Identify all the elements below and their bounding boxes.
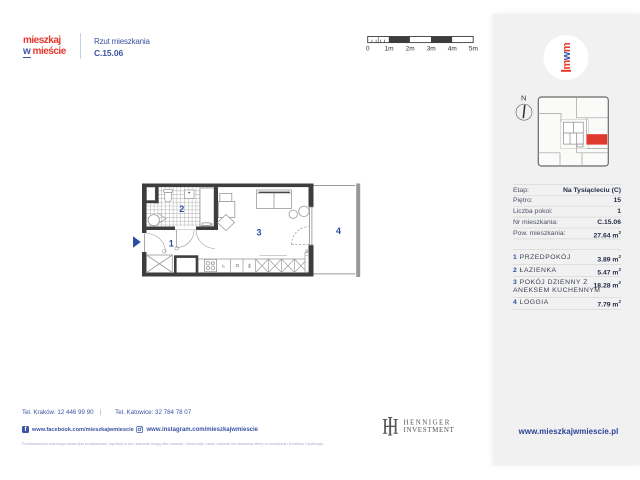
svg-text:2: 2 — [179, 204, 184, 214]
svg-text:2m: 2m — [406, 46, 415, 53]
svg-text:0: 0 — [366, 46, 370, 53]
svg-text:4m: 4m — [448, 46, 457, 53]
svg-text:5m: 5m — [469, 46, 478, 53]
svg-text:N: N — [521, 94, 526, 103]
svg-text:INVESTMENT: INVESTMENT — [404, 426, 455, 434]
svg-text:4: 4 — [336, 226, 341, 236]
svg-text:1: 1 — [169, 238, 174, 248]
svg-text:mwm: mwm — [561, 42, 573, 69]
svg-text:1m: 1m — [385, 46, 394, 53]
svg-text:3: 3 — [257, 228, 262, 238]
svg-text:3m: 3m — [427, 46, 436, 53]
